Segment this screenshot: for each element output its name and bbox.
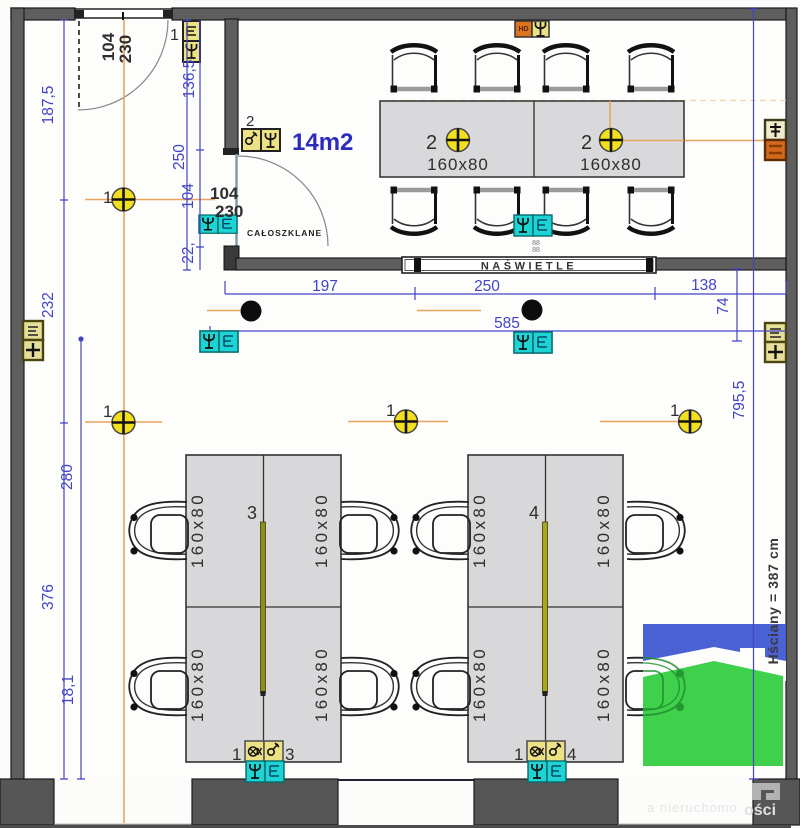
svg-text:1: 1 — [232, 745, 241, 764]
svg-text:88: 88 — [532, 240, 540, 247]
svg-text:160x80: 160x80 — [188, 492, 207, 568]
svg-text:136,5: 136,5 — [181, 60, 198, 99]
svg-text:2: 2 — [426, 132, 437, 154]
svg-text:1: 1 — [386, 401, 395, 420]
svg-text:160x80: 160x80 — [594, 492, 613, 568]
svg-text:1: 1 — [103, 402, 112, 421]
svg-text:160x80: 160x80 — [427, 155, 489, 174]
svg-text:250: 250 — [474, 278, 500, 295]
svg-text:104: 104 — [210, 184, 239, 203]
svg-text:ości: ości — [744, 802, 776, 819]
svg-text:HD: HD — [518, 26, 528, 33]
svg-text:280: 280 — [59, 464, 76, 490]
svg-text:160x80: 160x80 — [580, 155, 642, 174]
svg-text:4: 4 — [529, 503, 539, 523]
svg-text:1: 1 — [170, 27, 179, 44]
svg-text:232: 232 — [40, 292, 57, 318]
svg-text:160x80: 160x80 — [312, 646, 331, 722]
svg-text:18,1: 18,1 — [60, 675, 77, 705]
svg-text:1: 1 — [103, 188, 112, 207]
svg-text:585: 585 — [494, 315, 520, 332]
svg-text:138: 138 — [691, 277, 717, 294]
svg-text:250: 250 — [171, 144, 188, 170]
svg-text:4: 4 — [567, 745, 576, 764]
svg-text:160x80: 160x80 — [188, 646, 207, 722]
svg-text:160x80: 160x80 — [594, 646, 613, 722]
svg-text:795,5: 795,5 — [731, 381, 748, 420]
svg-text:160x80: 160x80 — [470, 492, 489, 568]
svg-text:376: 376 — [40, 584, 57, 610]
svg-text:3: 3 — [247, 503, 257, 523]
svg-text:14m2: 14m2 — [292, 129, 353, 156]
svg-text:160x80: 160x80 — [312, 492, 331, 568]
svg-text:22,: 22, — [180, 242, 197, 264]
svg-text:197: 197 — [312, 278, 338, 295]
svg-text:a nieruchomo: a nieruchomo — [647, 800, 738, 815]
svg-text:104: 104 — [180, 183, 197, 209]
svg-text:1: 1 — [514, 745, 523, 764]
svg-text:230: 230 — [116, 35, 135, 63]
svg-text:160x80: 160x80 — [470, 646, 489, 722]
svg-text:1: 1 — [670, 401, 679, 420]
svg-text:230: 230 — [215, 202, 243, 221]
svg-text:CAŁOSZKLANE: CAŁOSZKLANE — [247, 228, 322, 238]
svg-text:88: 88 — [532, 247, 540, 254]
svg-text:187,5: 187,5 — [40, 86, 57, 125]
svg-text:3: 3 — [285, 745, 294, 764]
svg-text:74: 74 — [715, 297, 732, 315]
svg-text:2: 2 — [246, 113, 254, 130]
svg-text:NAŚWIETLE: NAŚWIETLE — [481, 260, 577, 273]
svg-text:Hściany = 387 cm: Hściany = 387 cm — [765, 538, 781, 665]
svg-text:2: 2 — [581, 132, 592, 154]
